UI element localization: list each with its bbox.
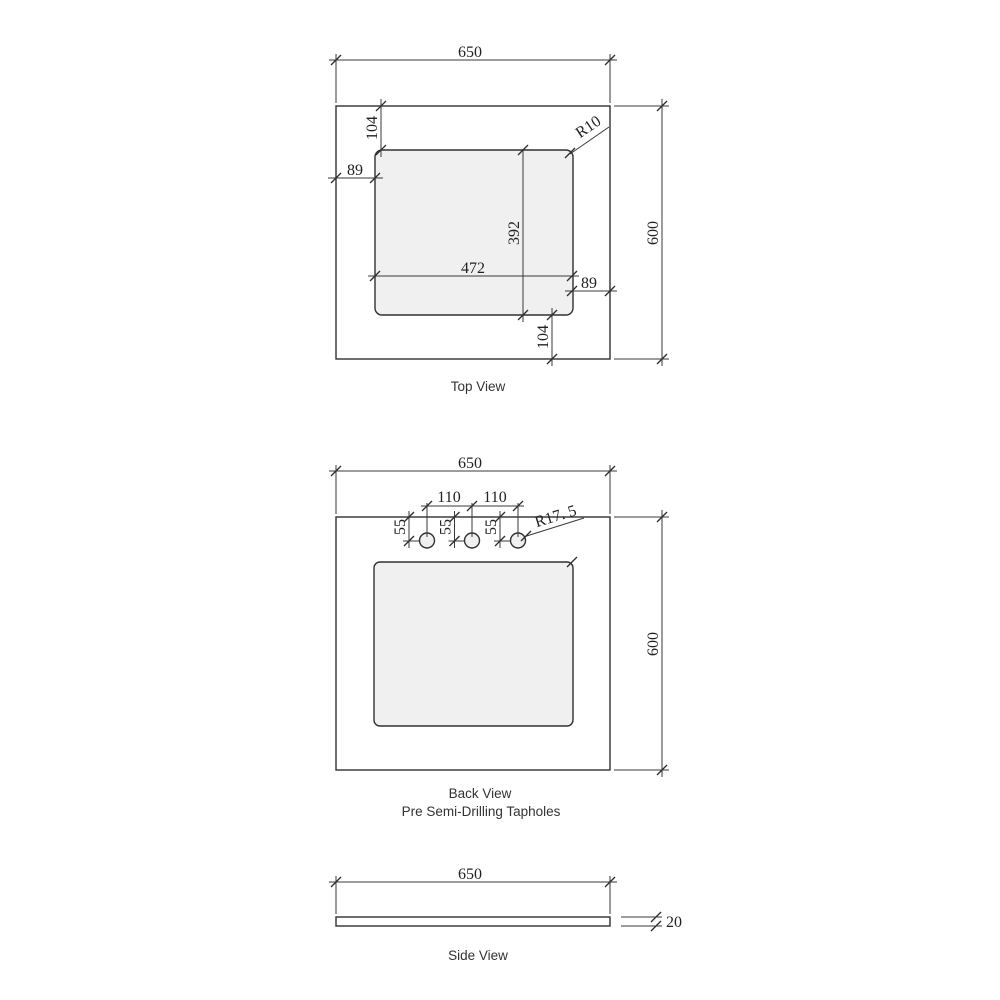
dim-text-20: 20 bbox=[666, 914, 682, 931]
dim-text-392: 392 bbox=[506, 221, 523, 245]
dim-text-650-back: 650 bbox=[458, 455, 482, 472]
back-radius-callout: R17. 5 bbox=[521, 502, 584, 541]
top-view-sink-cutout bbox=[375, 150, 573, 315]
top-radius-callout: R10 bbox=[565, 113, 609, 158]
dim-text-110-left: 110 bbox=[437, 489, 460, 506]
side-dim-overall-width: 650 bbox=[329, 866, 617, 914]
top-dim-overall-depth: 600 bbox=[614, 99, 669, 366]
back-view-bowl-outline bbox=[374, 562, 573, 726]
top-dim-inset-bottom: 104 bbox=[535, 308, 557, 366]
side-view-slab bbox=[336, 917, 610, 926]
dim-text-650-side: 650 bbox=[458, 866, 482, 883]
dim-text-104-top: 104 bbox=[364, 116, 381, 140]
dim-text-104-bottom: 104 bbox=[535, 325, 552, 349]
dim-text-r10: R10 bbox=[573, 113, 605, 142]
dim-text-55-2: 55 bbox=[438, 519, 455, 535]
side-dim-thickness: 20 bbox=[621, 912, 682, 931]
back-view-sublabel: Pre Semi-Drilling Tapholes bbox=[402, 804, 561, 819]
side-view: 650 20 Side View bbox=[329, 866, 682, 963]
dim-text-600-back: 600 bbox=[645, 632, 662, 656]
dim-text-89-left: 89 bbox=[347, 162, 363, 179]
back-view-label: Back View bbox=[449, 786, 512, 801]
back-view: 650 600 110 110 bbox=[329, 455, 669, 819]
dim-text-650: 650 bbox=[458, 44, 482, 61]
technical-drawing-page: 650 600 104 89 bbox=[0, 0, 1000, 1000]
dim-text-55-1: 55 bbox=[392, 519, 409, 535]
dim-text-110-right: 110 bbox=[483, 489, 506, 506]
dim-text-55-3: 55 bbox=[483, 519, 500, 535]
side-view-label: Side View bbox=[448, 948, 508, 963]
dim-text-472: 472 bbox=[461, 260, 485, 277]
dim-text-600: 600 bbox=[645, 221, 662, 245]
top-view-label: Top View bbox=[451, 379, 506, 394]
top-dim-inset-top: 104 bbox=[364, 99, 386, 157]
top-dim-overall-width: 650 bbox=[329, 44, 617, 103]
top-view: 650 600 104 89 bbox=[328, 44, 669, 394]
drawing-sheet: 650 600 104 89 bbox=[0, 0, 1000, 1000]
dim-text-89-right: 89 bbox=[581, 275, 597, 292]
back-dim-overall-height: 600 bbox=[614, 510, 669, 777]
